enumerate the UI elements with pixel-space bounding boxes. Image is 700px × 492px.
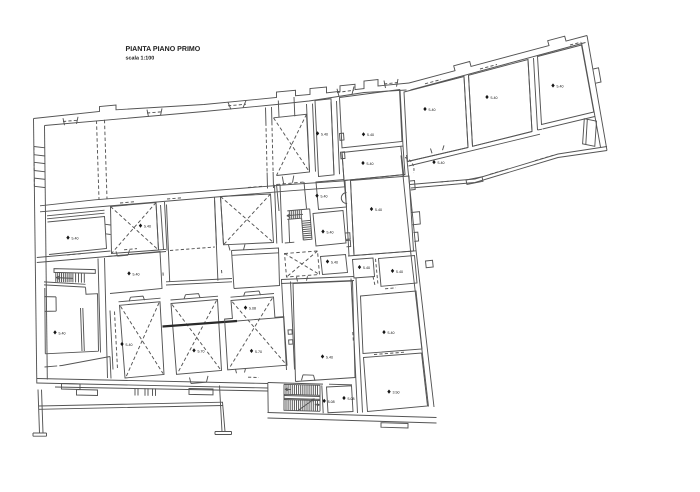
svg-text:5.40: 5.40	[326, 355, 333, 359]
svg-text:5.40: 5.40	[321, 132, 328, 136]
svg-text:5.40: 5.40	[388, 331, 395, 335]
svg-text:5.40: 5.40	[144, 225, 151, 229]
svg-text:5.40: 5.40	[327, 230, 334, 234]
svg-text:5.08: 5.08	[249, 307, 256, 311]
svg-text:scala 1:100: scala 1:100	[126, 56, 155, 62]
svg-text:5.70: 5.70	[198, 349, 205, 353]
svg-text:5.40: 5.40	[126, 343, 133, 347]
svg-text:5.40: 5.40	[429, 108, 436, 112]
svg-text:5.08: 5.08	[328, 400, 335, 404]
svg-text:5.40: 5.40	[59, 331, 66, 335]
svg-text:5.40: 5.40	[72, 237, 79, 241]
svg-text:5.40: 5.40	[367, 133, 374, 137]
svg-text:5.40: 5.40	[438, 161, 445, 165]
svg-text:5.40: 5.40	[367, 162, 374, 166]
svg-text:5.40: 5.40	[557, 84, 564, 88]
svg-text:5.40: 5.40	[491, 96, 498, 100]
svg-text:5.70: 5.70	[255, 350, 262, 354]
svg-text:3.50: 3.50	[393, 391, 400, 395]
svg-text:5.40: 5.40	[321, 195, 328, 199]
svg-text:5.40: 5.40	[375, 208, 382, 212]
svg-text:5.08: 5.08	[348, 397, 355, 401]
svg-text:5.40: 5.40	[396, 270, 403, 274]
svg-text:5.40: 5.40	[331, 260, 338, 264]
svg-text:5.40: 5.40	[363, 266, 370, 270]
svg-text:5.40: 5.40	[133, 272, 140, 276]
svg-text:PIANTA PIANO PRIMO: PIANTA PIANO PRIMO	[126, 46, 201, 53]
